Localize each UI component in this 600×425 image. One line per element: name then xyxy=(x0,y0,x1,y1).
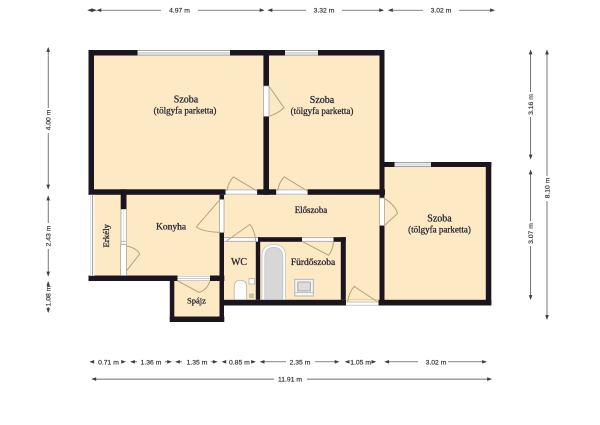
svg-text:Fürdőszoba: Fürdőszoba xyxy=(291,258,336,268)
svg-text:11.91 m: 11.91 m xyxy=(278,376,302,383)
svg-text:0.71 m: 0.71 m xyxy=(98,359,119,366)
svg-text:(tölgyfa parketta): (tölgyfa parketta) xyxy=(408,225,471,235)
svg-text:Szoba: Szoba xyxy=(310,95,335,106)
svg-text:8.10 m: 8.10 m xyxy=(544,177,551,198)
svg-text:Spájz: Spájz xyxy=(187,296,206,306)
svg-text:3.02 m: 3.02 m xyxy=(431,7,452,14)
svg-text:2.35 m: 2.35 m xyxy=(290,359,311,366)
svg-text:3.16 m: 3.16 m xyxy=(528,94,535,115)
svg-text:4.00 m: 4.00 m xyxy=(46,109,53,130)
svg-text:1.35 m: 1.35 m xyxy=(187,359,208,366)
svg-text:Szoba: Szoba xyxy=(174,95,199,106)
svg-text:3.02 m: 3.02 m xyxy=(426,359,447,366)
svg-text:Előszoba: Előszoba xyxy=(295,205,328,215)
svg-text:(tölgyfa parketta): (tölgyfa parketta) xyxy=(291,106,354,116)
svg-text:3.07 m: 3.07 m xyxy=(528,223,535,244)
svg-text:(tölgyfa parketta): (tölgyfa parketta) xyxy=(154,106,217,116)
svg-text:Szoba: Szoba xyxy=(427,214,452,225)
svg-text:0.85 m: 0.85 m xyxy=(229,359,250,366)
svg-text:Konyha: Konyha xyxy=(156,223,187,233)
svg-text:2.43 m: 2.43 m xyxy=(46,225,53,246)
svg-text:4.97 m: 4.97 m xyxy=(169,7,190,14)
svg-text:Erkély: Erkély xyxy=(101,223,111,247)
svg-text:1.36 m: 1.36 m xyxy=(141,359,162,366)
svg-text:WC: WC xyxy=(231,257,247,268)
svg-text:1.08 m: 1.08 m xyxy=(46,285,53,306)
svg-text:1.05 m: 1.05 m xyxy=(350,359,371,366)
svg-text:3.32 m: 3.32 m xyxy=(314,7,335,14)
